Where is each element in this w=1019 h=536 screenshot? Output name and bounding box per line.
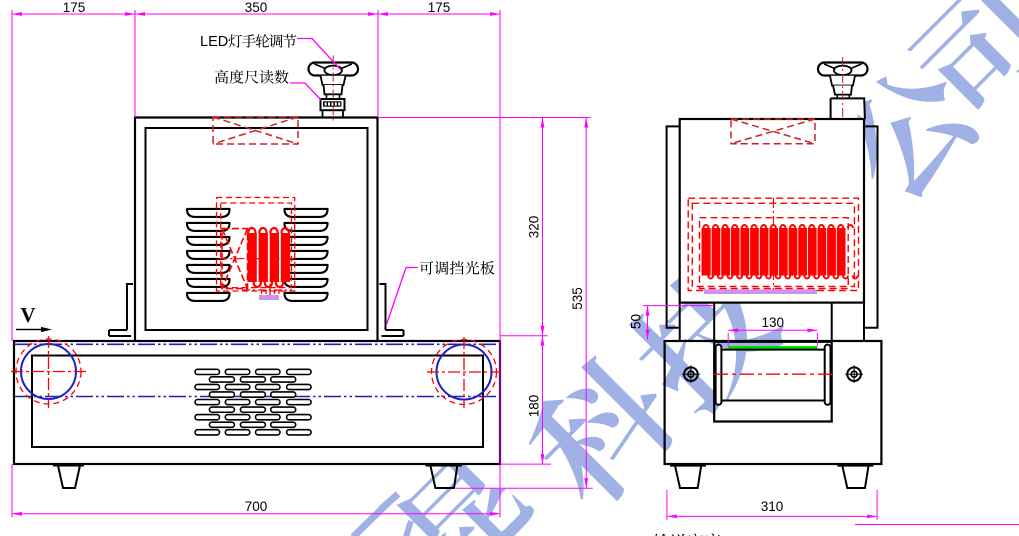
svg-text:310: 310 xyxy=(761,499,784,514)
svg-text:535: 535 xyxy=(570,287,585,310)
svg-text:175: 175 xyxy=(63,0,86,15)
svg-text:130: 130 xyxy=(762,315,785,330)
svg-text:50: 50 xyxy=(629,314,644,329)
svg-text:175: 175 xyxy=(428,0,451,15)
svg-text:320: 320 xyxy=(527,216,542,239)
svg-text:180: 180 xyxy=(527,395,542,418)
svg-text:700: 700 xyxy=(245,499,268,514)
svg-text:V: V xyxy=(20,303,35,327)
svg-text:350: 350 xyxy=(245,0,268,15)
svg-text:LED: LED xyxy=(200,34,228,50)
